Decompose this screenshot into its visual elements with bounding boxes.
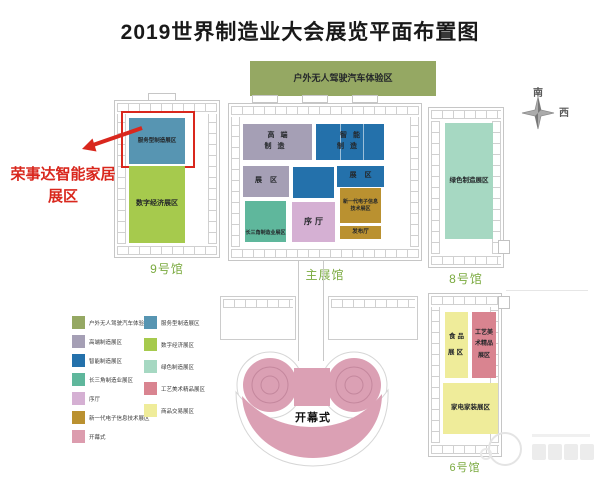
hall-8-label: 8号馆 bbox=[428, 270, 504, 287]
legend-swatch bbox=[144, 404, 157, 417]
stair-block bbox=[498, 296, 510, 309]
watermark-logo-icon bbox=[480, 448, 492, 460]
floor-plan: 2019世界制造业大会展览平面布置图 户外无人驾驶汽车体验区 南 西 服务型制造… bbox=[0, 0, 600, 477]
hall-9-label: 9号馆 bbox=[114, 260, 220, 277]
legend-item: 数字经济展区 bbox=[144, 338, 205, 351]
legend-item: 序厅 bbox=[72, 392, 150, 405]
legend-label: 户外无人驾驶汽车体验区 bbox=[89, 319, 150, 327]
legend-swatch bbox=[144, 382, 157, 395]
legend-item: 工艺美术精品展区 bbox=[144, 382, 205, 395]
booth-strip bbox=[431, 110, 501, 119]
watermark bbox=[484, 430, 596, 472]
watermark-glyph bbox=[548, 444, 562, 460]
zone-highend-manufacturing: 高端 制造 bbox=[243, 124, 312, 160]
zone-smart-annex bbox=[293, 167, 334, 198]
legend-label: 长三角制造业展区 bbox=[89, 376, 133, 384]
zone-digital-economy: 数字经济展区 bbox=[129, 166, 185, 243]
booth-strip bbox=[431, 307, 440, 443]
legend-label: 工艺美术精品展区 bbox=[161, 385, 205, 393]
site-boundary-line bbox=[506, 290, 588, 291]
booth-strip bbox=[231, 117, 240, 247]
callout-line2: 展区 bbox=[0, 185, 126, 206]
legend-swatch bbox=[144, 360, 157, 373]
zone-smart-manufacturing: 智能 制造 bbox=[316, 124, 384, 160]
zone-yangtze-delta: 长三角制造业展区 bbox=[245, 201, 286, 242]
zone-food: 食品 展区 bbox=[445, 312, 468, 378]
zone-release-hall: 发布厅 bbox=[340, 226, 381, 239]
legend-item: 户外无人驾驶汽车体验区 bbox=[72, 316, 150, 329]
booth-strip bbox=[431, 296, 499, 305]
zone-outdoor-driverless: 户外无人驾驶汽车体验区 bbox=[250, 61, 436, 96]
compass-rose-icon bbox=[521, 96, 555, 130]
legend-swatch bbox=[144, 338, 157, 351]
legend-swatch bbox=[144, 316, 157, 329]
legend-item: 服务型制造展区 bbox=[144, 316, 205, 329]
page-title: 2019世界制造业大会展览平面布置图 bbox=[0, 16, 600, 46]
legend-item: 绿色制造展区 bbox=[144, 360, 205, 373]
zone-green-manufacturing: 绿色制造展区 bbox=[445, 123, 493, 239]
legend-swatch bbox=[72, 354, 85, 367]
roof-tab bbox=[252, 95, 278, 103]
roof-tab bbox=[302, 95, 328, 103]
opening-ceremony-shape bbox=[212, 330, 422, 476]
legend-swatch bbox=[72, 316, 85, 329]
zone-highend-area: 展区 bbox=[243, 166, 289, 197]
callout-line1: 荣事达智能家居 bbox=[0, 163, 126, 184]
legend-swatch bbox=[72, 335, 85, 348]
booth-strip bbox=[431, 121, 440, 254]
booth-strip bbox=[223, 299, 293, 308]
callout-arrow-icon bbox=[78, 118, 148, 156]
legend-item: 新一代电子信息技术展区 bbox=[72, 411, 150, 424]
zone-nextgen-it: 新一代电子信息技术展区 bbox=[340, 188, 381, 223]
zone-smart-area: 展区 bbox=[337, 166, 384, 187]
booth-strip bbox=[117, 246, 217, 255]
zone-crafts: 工艺美 术精品 展区 bbox=[472, 312, 496, 378]
legend-item: 高端制造展区 bbox=[72, 335, 150, 348]
roof-tab bbox=[352, 95, 378, 103]
legend-label: 序厅 bbox=[89, 395, 100, 403]
legend-label: 服务型制造展区 bbox=[161, 319, 200, 327]
watermark-glyph bbox=[532, 444, 546, 460]
legend-item: 智能制造展区 bbox=[72, 354, 150, 367]
legend-label: 绿色制造展区 bbox=[161, 363, 194, 371]
booth-strip bbox=[410, 117, 419, 247]
watermark-text-line bbox=[532, 434, 590, 437]
booth-strip bbox=[231, 249, 419, 258]
legend-left-column: 户外无人驾驶汽车体验区高端制造展区智能制造展区长三角制造业展区序厅新一代电子信息… bbox=[72, 316, 150, 443]
legend-label: 数字经济展区 bbox=[161, 341, 194, 349]
booth-strip bbox=[492, 121, 501, 254]
legend-right-column: 服务型制造展区数字经济展区绿色制造展区工艺美术精品展区商品交易展区 bbox=[144, 316, 205, 417]
zone-atrium: 序厅 bbox=[292, 202, 335, 242]
zone-opening-ceremony-label: 开幕式 bbox=[284, 409, 342, 425]
watermark-logo-icon bbox=[488, 432, 522, 466]
legend-swatch bbox=[72, 430, 85, 443]
watermark-glyph bbox=[564, 444, 578, 460]
booth-strip bbox=[431, 256, 501, 265]
legend-item: 长三角制造业展区 bbox=[72, 373, 150, 386]
booth-strip bbox=[331, 299, 415, 308]
booth-strip bbox=[208, 114, 217, 244]
compass-west-label: 西 bbox=[559, 104, 579, 119]
watermark-glyph bbox=[580, 444, 594, 460]
legend-swatch bbox=[72, 373, 85, 386]
legend-label: 开幕式 bbox=[89, 433, 106, 441]
main-hall-label: 主展馆 bbox=[228, 266, 422, 283]
legend-label: 新一代电子信息技术展区 bbox=[89, 414, 150, 422]
legend-swatch bbox=[72, 392, 85, 405]
zone-home-appliance: 家电家装展区 bbox=[443, 383, 498, 434]
legend-label: 高端制造展区 bbox=[89, 338, 122, 346]
legend-label: 商品交易展区 bbox=[161, 407, 194, 415]
legend-item: 商品交易展区 bbox=[144, 404, 205, 417]
legend-item: 开幕式 bbox=[72, 430, 150, 443]
legend-label: 智能制造展区 bbox=[89, 357, 122, 365]
booth-strip bbox=[231, 106, 419, 115]
stair-block bbox=[498, 240, 510, 254]
legend-swatch bbox=[72, 411, 85, 424]
